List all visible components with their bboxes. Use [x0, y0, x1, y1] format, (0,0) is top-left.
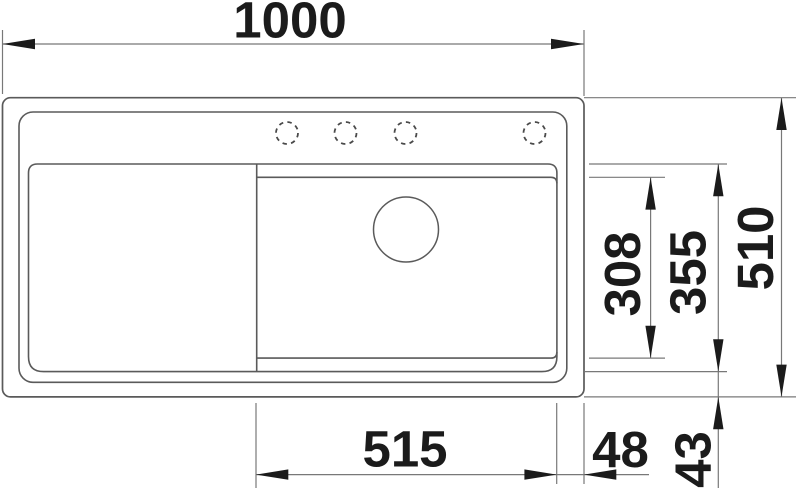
- svg-text:308: 308: [594, 231, 651, 316]
- svg-text:43: 43: [665, 431, 722, 488]
- svg-text:510: 510: [727, 205, 784, 290]
- svg-text:355: 355: [660, 230, 717, 315]
- svg-text:48: 48: [592, 421, 649, 478]
- svg-text:1000: 1000: [233, 0, 346, 49]
- svg-text:515: 515: [362, 421, 447, 478]
